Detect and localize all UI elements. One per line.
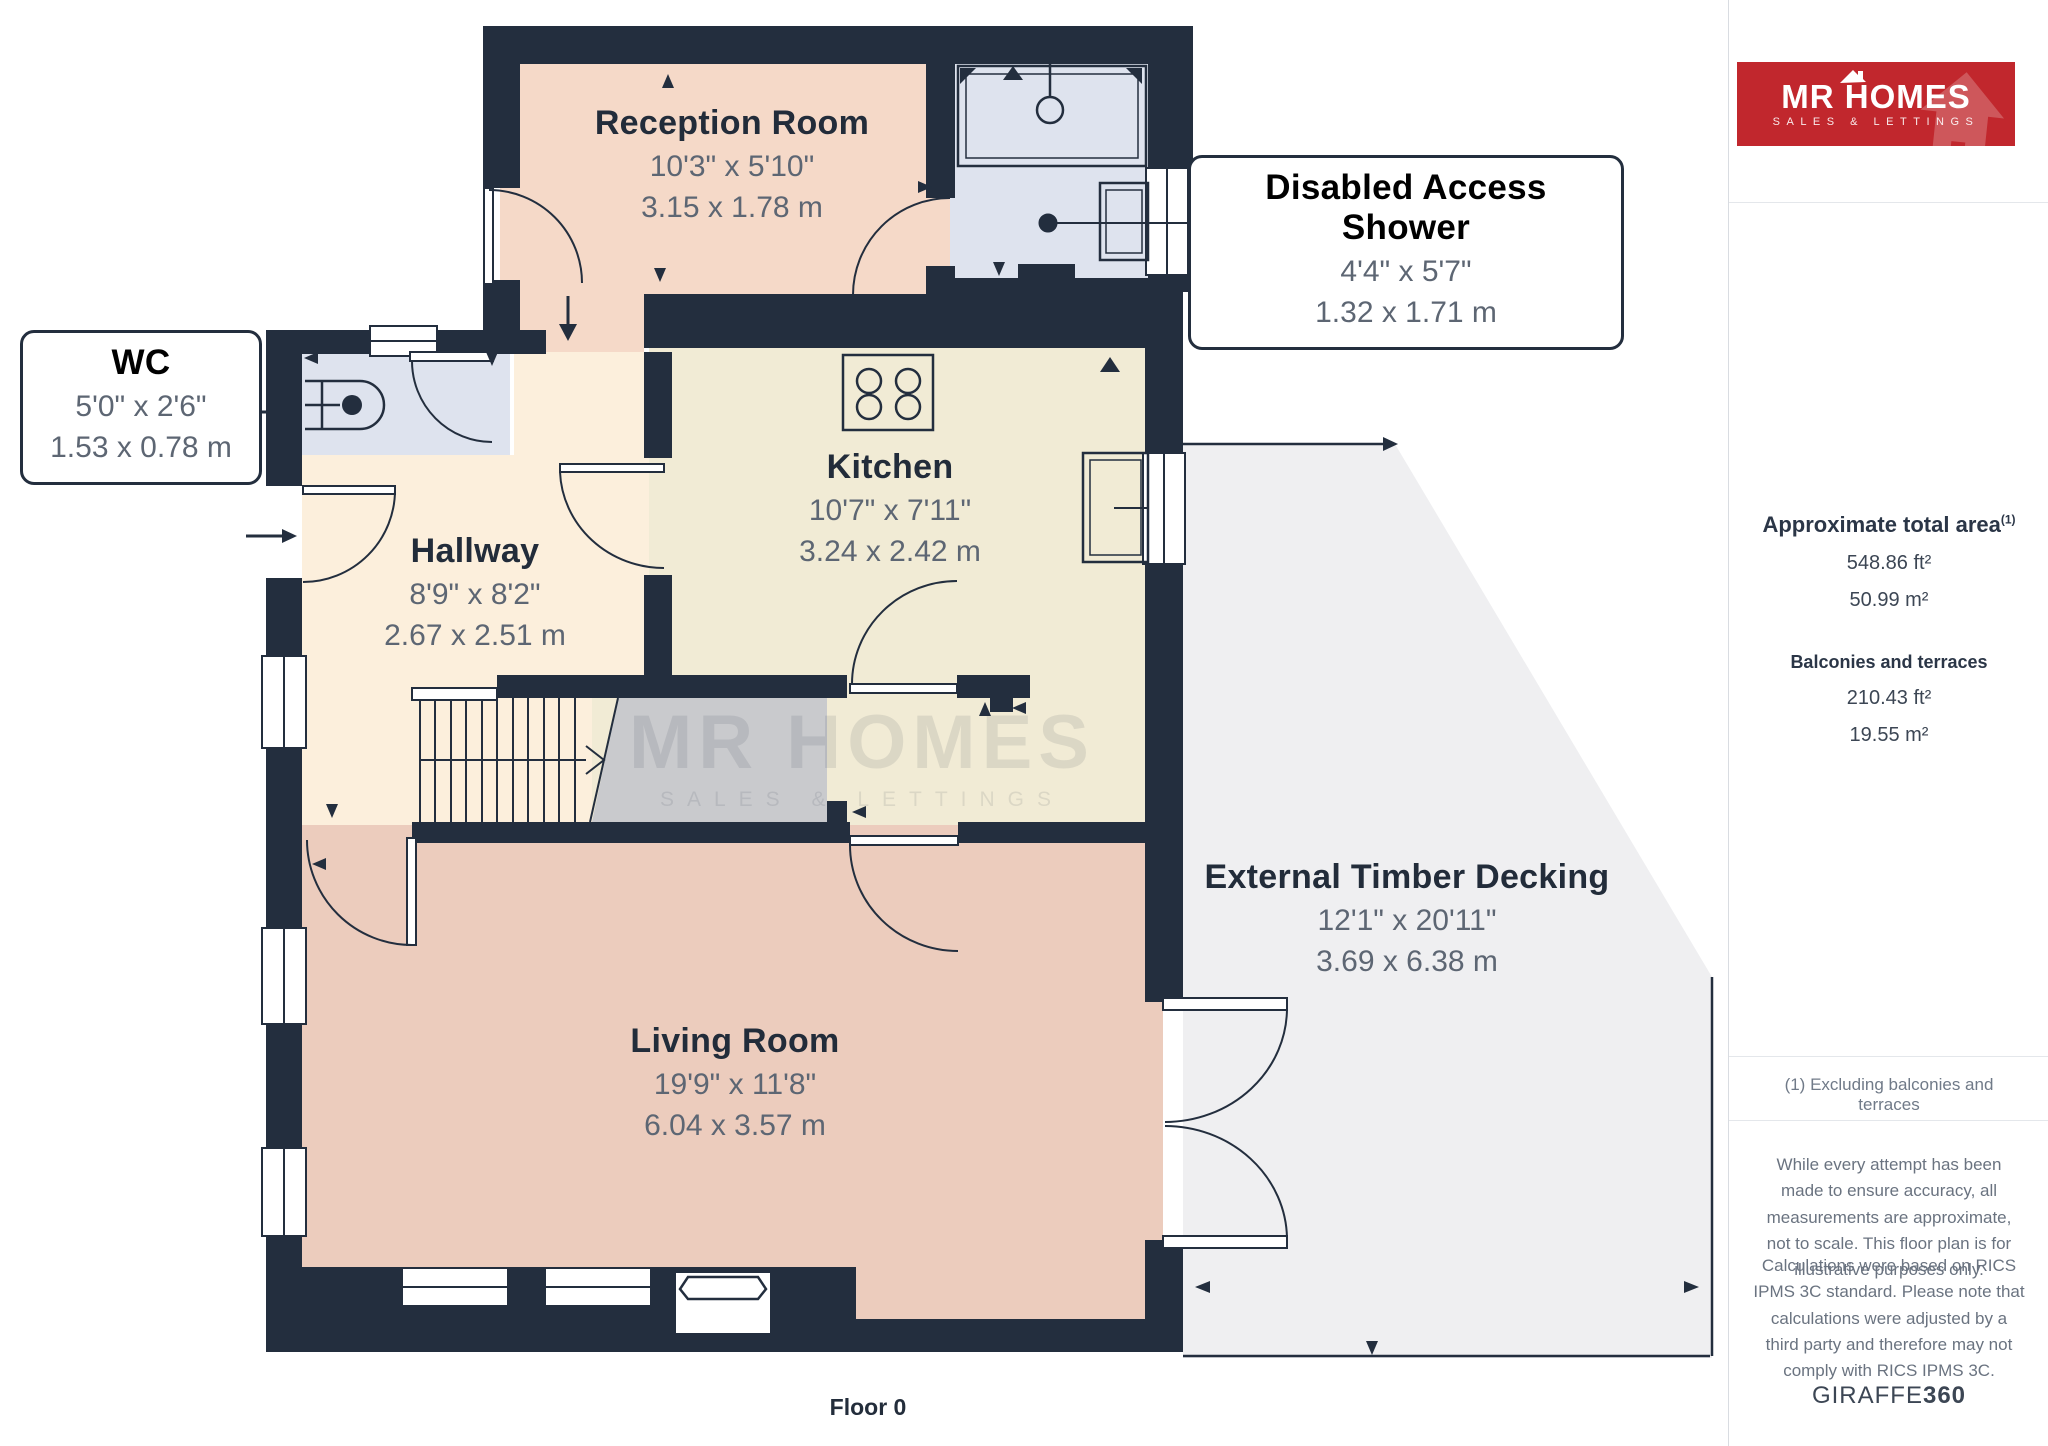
logo-roof-icon	[1838, 68, 1868, 84]
shower-callout: Disabled Access Shower 4'4" x 5'7" 1.32 …	[1188, 155, 1624, 350]
total-area-ft: 548.86 ft²	[1753, 552, 2025, 575]
balconies-ft: 210.43 ft²	[1753, 687, 2025, 710]
divider	[1729, 1120, 2048, 1121]
floor-label: Floor 0	[768, 1394, 968, 1421]
reception-imperial: 10'3" x 5'10"	[517, 147, 947, 188]
divider	[1729, 202, 2048, 203]
brand-name: GIRAFFE	[1812, 1382, 1923, 1409]
floorplan-page: MR HOMES SALES & LETTINGS Reception Room…	[0, 0, 2048, 1446]
room-label-reception: Reception Room 10'3" x 5'10" 3.15 x 1.78…	[517, 104, 947, 228]
living-metric: 6.04 x 3.57 m	[520, 1106, 950, 1147]
reception-metric: 3.15 x 1.78 m	[517, 188, 947, 229]
wc-metric: 1.53 x 0.78 m	[37, 428, 245, 469]
svg-text:SALES & LETTINGS: SALES & LETTINGS	[660, 788, 1064, 811]
balconies-m: 19.55 m²	[1753, 724, 2025, 747]
brand-suffix: 360	[1923, 1382, 1966, 1409]
sidebar: MR HOMES SALES & LETTINGS Approximate to…	[1728, 0, 2048, 1446]
total-area-m: 50.99 m²	[1753, 589, 2025, 612]
shower-imperial: 4'4" x 5'7"	[1205, 252, 1607, 293]
footnote: (1) Excluding balconies and terraces	[1753, 1075, 2025, 1115]
area-summary: Approximate total area(1) 548.86 ft² 50.…	[1753, 512, 2025, 747]
room-label-kitchen: Kitchen 10'7" x 7'11" 3.24 x 2.42 m	[690, 448, 1090, 572]
agency-logo: MR HOMES SALES & LETTINGS	[1737, 62, 2015, 146]
giraffe360-brand: GIRAFFE360	[1753, 1382, 2025, 1410]
divider	[1729, 1056, 2048, 1057]
total-area-title: Approximate total area	[1762, 512, 2000, 537]
shower-metric: 1.32 x 1.71 m	[1205, 293, 1607, 334]
room-label-hallway: Hallway 8'9" x 8'2" 2.67 x 2.51 m	[300, 532, 650, 656]
decking-metric: 3.69 x 6.38 m	[1177, 942, 1637, 983]
hallway-imperial: 8'9" x 8'2"	[300, 575, 650, 616]
hallway-metric: 2.67 x 2.51 m	[300, 616, 650, 657]
room-label-living: Living Room 19'9" x 11'8" 6.04 x 3.57 m	[520, 1022, 950, 1146]
footnote-marker: (1)	[2001, 513, 2016, 527]
kitchen-imperial: 10'7" x 7'11"	[690, 491, 1090, 532]
living-imperial: 19'9" x 11'8"	[520, 1065, 950, 1106]
fireplace	[676, 1273, 770, 1333]
kitchen-metric: 3.24 x 2.42 m	[690, 532, 1090, 573]
room-label-decking: External Timber Decking 12'1" x 20'11" 3…	[1177, 858, 1637, 982]
wc-callout: WC 5'0" x 2'6" 1.53 x 0.78 m	[20, 330, 262, 485]
decking-imperial: 12'1" x 20'11"	[1177, 901, 1637, 942]
logo-subtext: SALES & LETTINGS	[1773, 116, 1980, 128]
disclaimer-2: Calculations were based on RICS IPMS 3C …	[1753, 1253, 2025, 1385]
stair-landing-edge	[412, 688, 497, 700]
watermark: MR HOMES SALES & LETTINGS	[629, 700, 1095, 811]
wc-imperial: 5'0" x 2'6"	[37, 387, 245, 428]
logo-text: MR HOMES	[1781, 80, 1971, 113]
svg-text:MR HOMES: MR HOMES	[629, 700, 1095, 785]
balconies-title: Balconies and terraces	[1753, 652, 2025, 673]
